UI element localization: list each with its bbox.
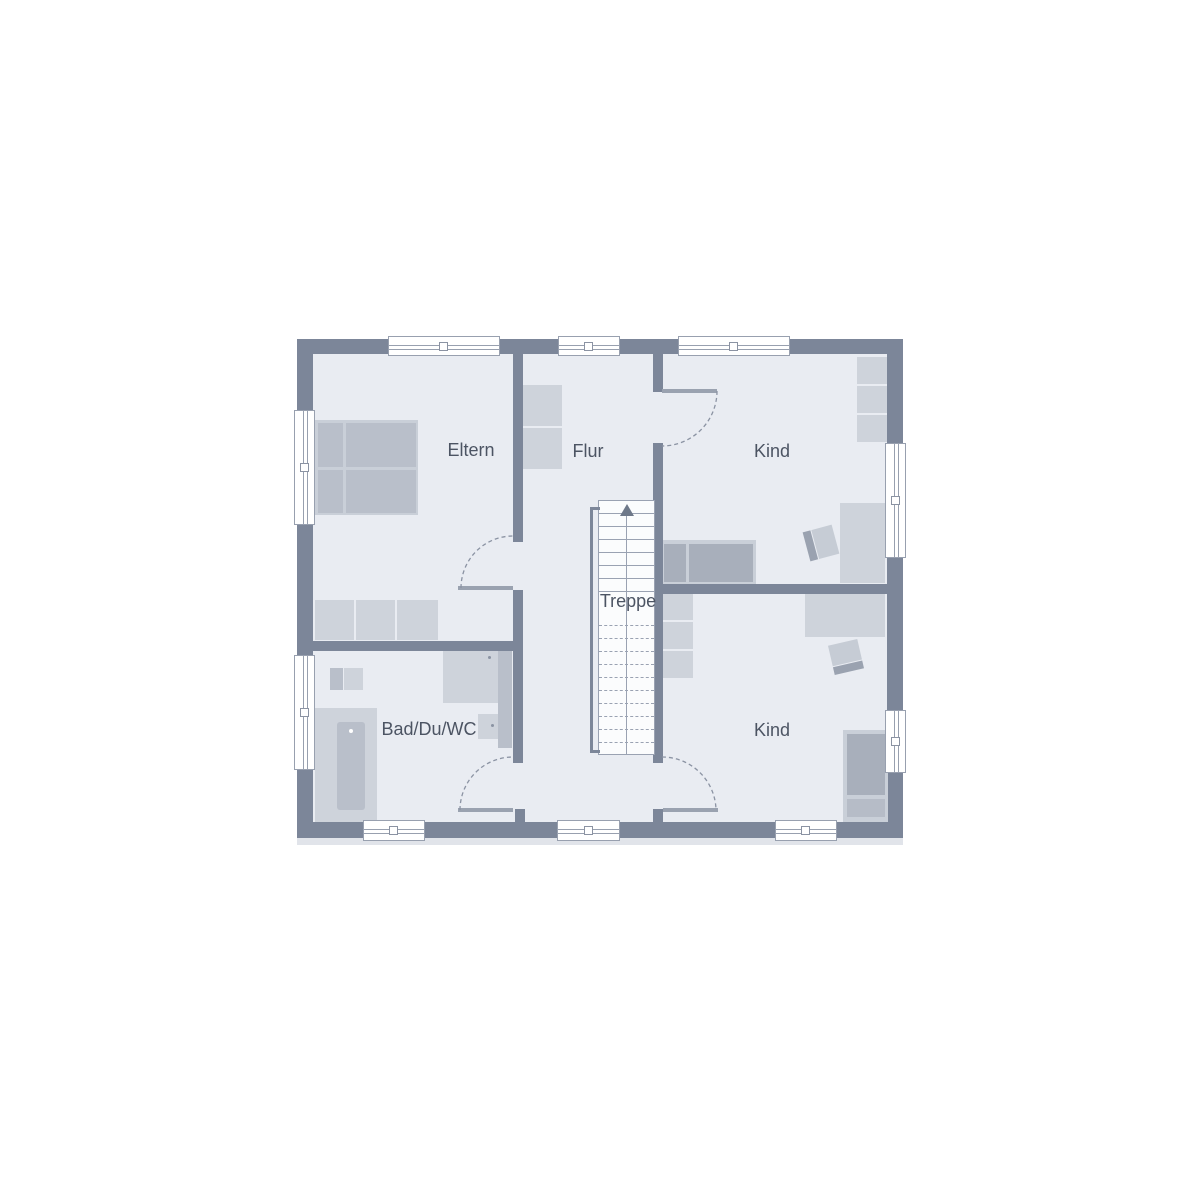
- door-leaf: [458, 586, 513, 590]
- window-handle-icon: [584, 342, 593, 351]
- window: [294, 410, 315, 525]
- bathtub: [337, 722, 365, 810]
- bed-blanket: [346, 470, 416, 513]
- bed-mattress: [847, 734, 885, 795]
- stair-handrail: [590, 750, 600, 753]
- stair-handrail: [590, 507, 593, 753]
- eltern-sideboard: [315, 600, 354, 640]
- wall-kind-kind: [663, 584, 887, 594]
- window: [885, 710, 906, 773]
- window: [885, 443, 906, 558]
- shower-head: [488, 656, 491, 659]
- window: [294, 655, 315, 770]
- room-label-flur: Flur: [573, 442, 604, 460]
- window-handle-icon: [300, 463, 309, 472]
- window-handle-icon: [729, 342, 738, 351]
- room-label-treppe: Treppe: [600, 592, 656, 610]
- bed-pillow: [847, 799, 885, 817]
- wall-flur-kind: [653, 354, 663, 392]
- room-label-bad: Bad/Du/WC: [381, 720, 476, 738]
- room-label-kind-top: Kind: [754, 442, 790, 460]
- window-handle-icon: [891, 496, 900, 505]
- wc-toilet: [344, 668, 363, 690]
- window: [388, 336, 500, 356]
- bed-pillow: [318, 423, 343, 467]
- bed-mattress: [689, 544, 753, 582]
- kind-top-wardrobe: [857, 386, 887, 413]
- bath-counter: [498, 651, 512, 748]
- window-handle-icon: [439, 342, 448, 351]
- eltern-sideboard: [356, 600, 395, 640]
- window-handle-icon: [389, 826, 398, 835]
- washbasin: [478, 714, 498, 739]
- bathtub-drain: [349, 729, 353, 733]
- door-jamb-stub: [515, 809, 525, 822]
- kind-bottom-wardrobe: [663, 593, 693, 620]
- wall-eltern-flur: [513, 354, 523, 542]
- bed-blanket: [346, 423, 416, 467]
- stair-handrail: [590, 507, 600, 510]
- bed-pillow: [318, 470, 343, 513]
- flur-wardrobe: [523, 428, 562, 469]
- room-label-kind-bottom: Kind: [754, 721, 790, 739]
- door-jamb-stub: [653, 809, 663, 822]
- wc-toilet: [330, 668, 343, 690]
- window-handle-icon: [891, 737, 900, 746]
- room-label-eltern: Eltern: [447, 441, 494, 459]
- window: [678, 336, 790, 356]
- stair-direction-arrow-icon: [620, 504, 634, 516]
- wall-eltern-bad: [313, 641, 513, 651]
- kind-bottom-desk: [805, 593, 885, 637]
- kind-bottom-wardrobe: [663, 651, 693, 678]
- window-handle-icon: [300, 708, 309, 717]
- kind-top-wardrobe: [857, 415, 887, 442]
- eltern-sideboard: [397, 600, 438, 640]
- kind-bottom-wardrobe: [663, 622, 693, 649]
- bed-pillow: [664, 544, 686, 582]
- washbasin-tap: [491, 724, 494, 727]
- window-handle-icon: [584, 826, 593, 835]
- window: [557, 820, 620, 841]
- door-leaf: [458, 808, 513, 812]
- window: [558, 336, 620, 356]
- window: [363, 820, 425, 841]
- wall-eltern-flur: [513, 590, 523, 763]
- window-handle-icon: [801, 826, 810, 835]
- door-leaf: [662, 389, 717, 393]
- kind-top-desk: [840, 503, 885, 583]
- flur-wardrobe: [523, 385, 562, 426]
- door-leaf: [663, 808, 718, 812]
- floor-plan: Eltern Flur Kind Treppe Bad/Du/WC Kind: [0, 0, 1200, 1200]
- window: [775, 820, 837, 841]
- staircase: [598, 500, 655, 755]
- kind-top-wardrobe: [857, 357, 887, 384]
- stair-center-line: [626, 511, 627, 754]
